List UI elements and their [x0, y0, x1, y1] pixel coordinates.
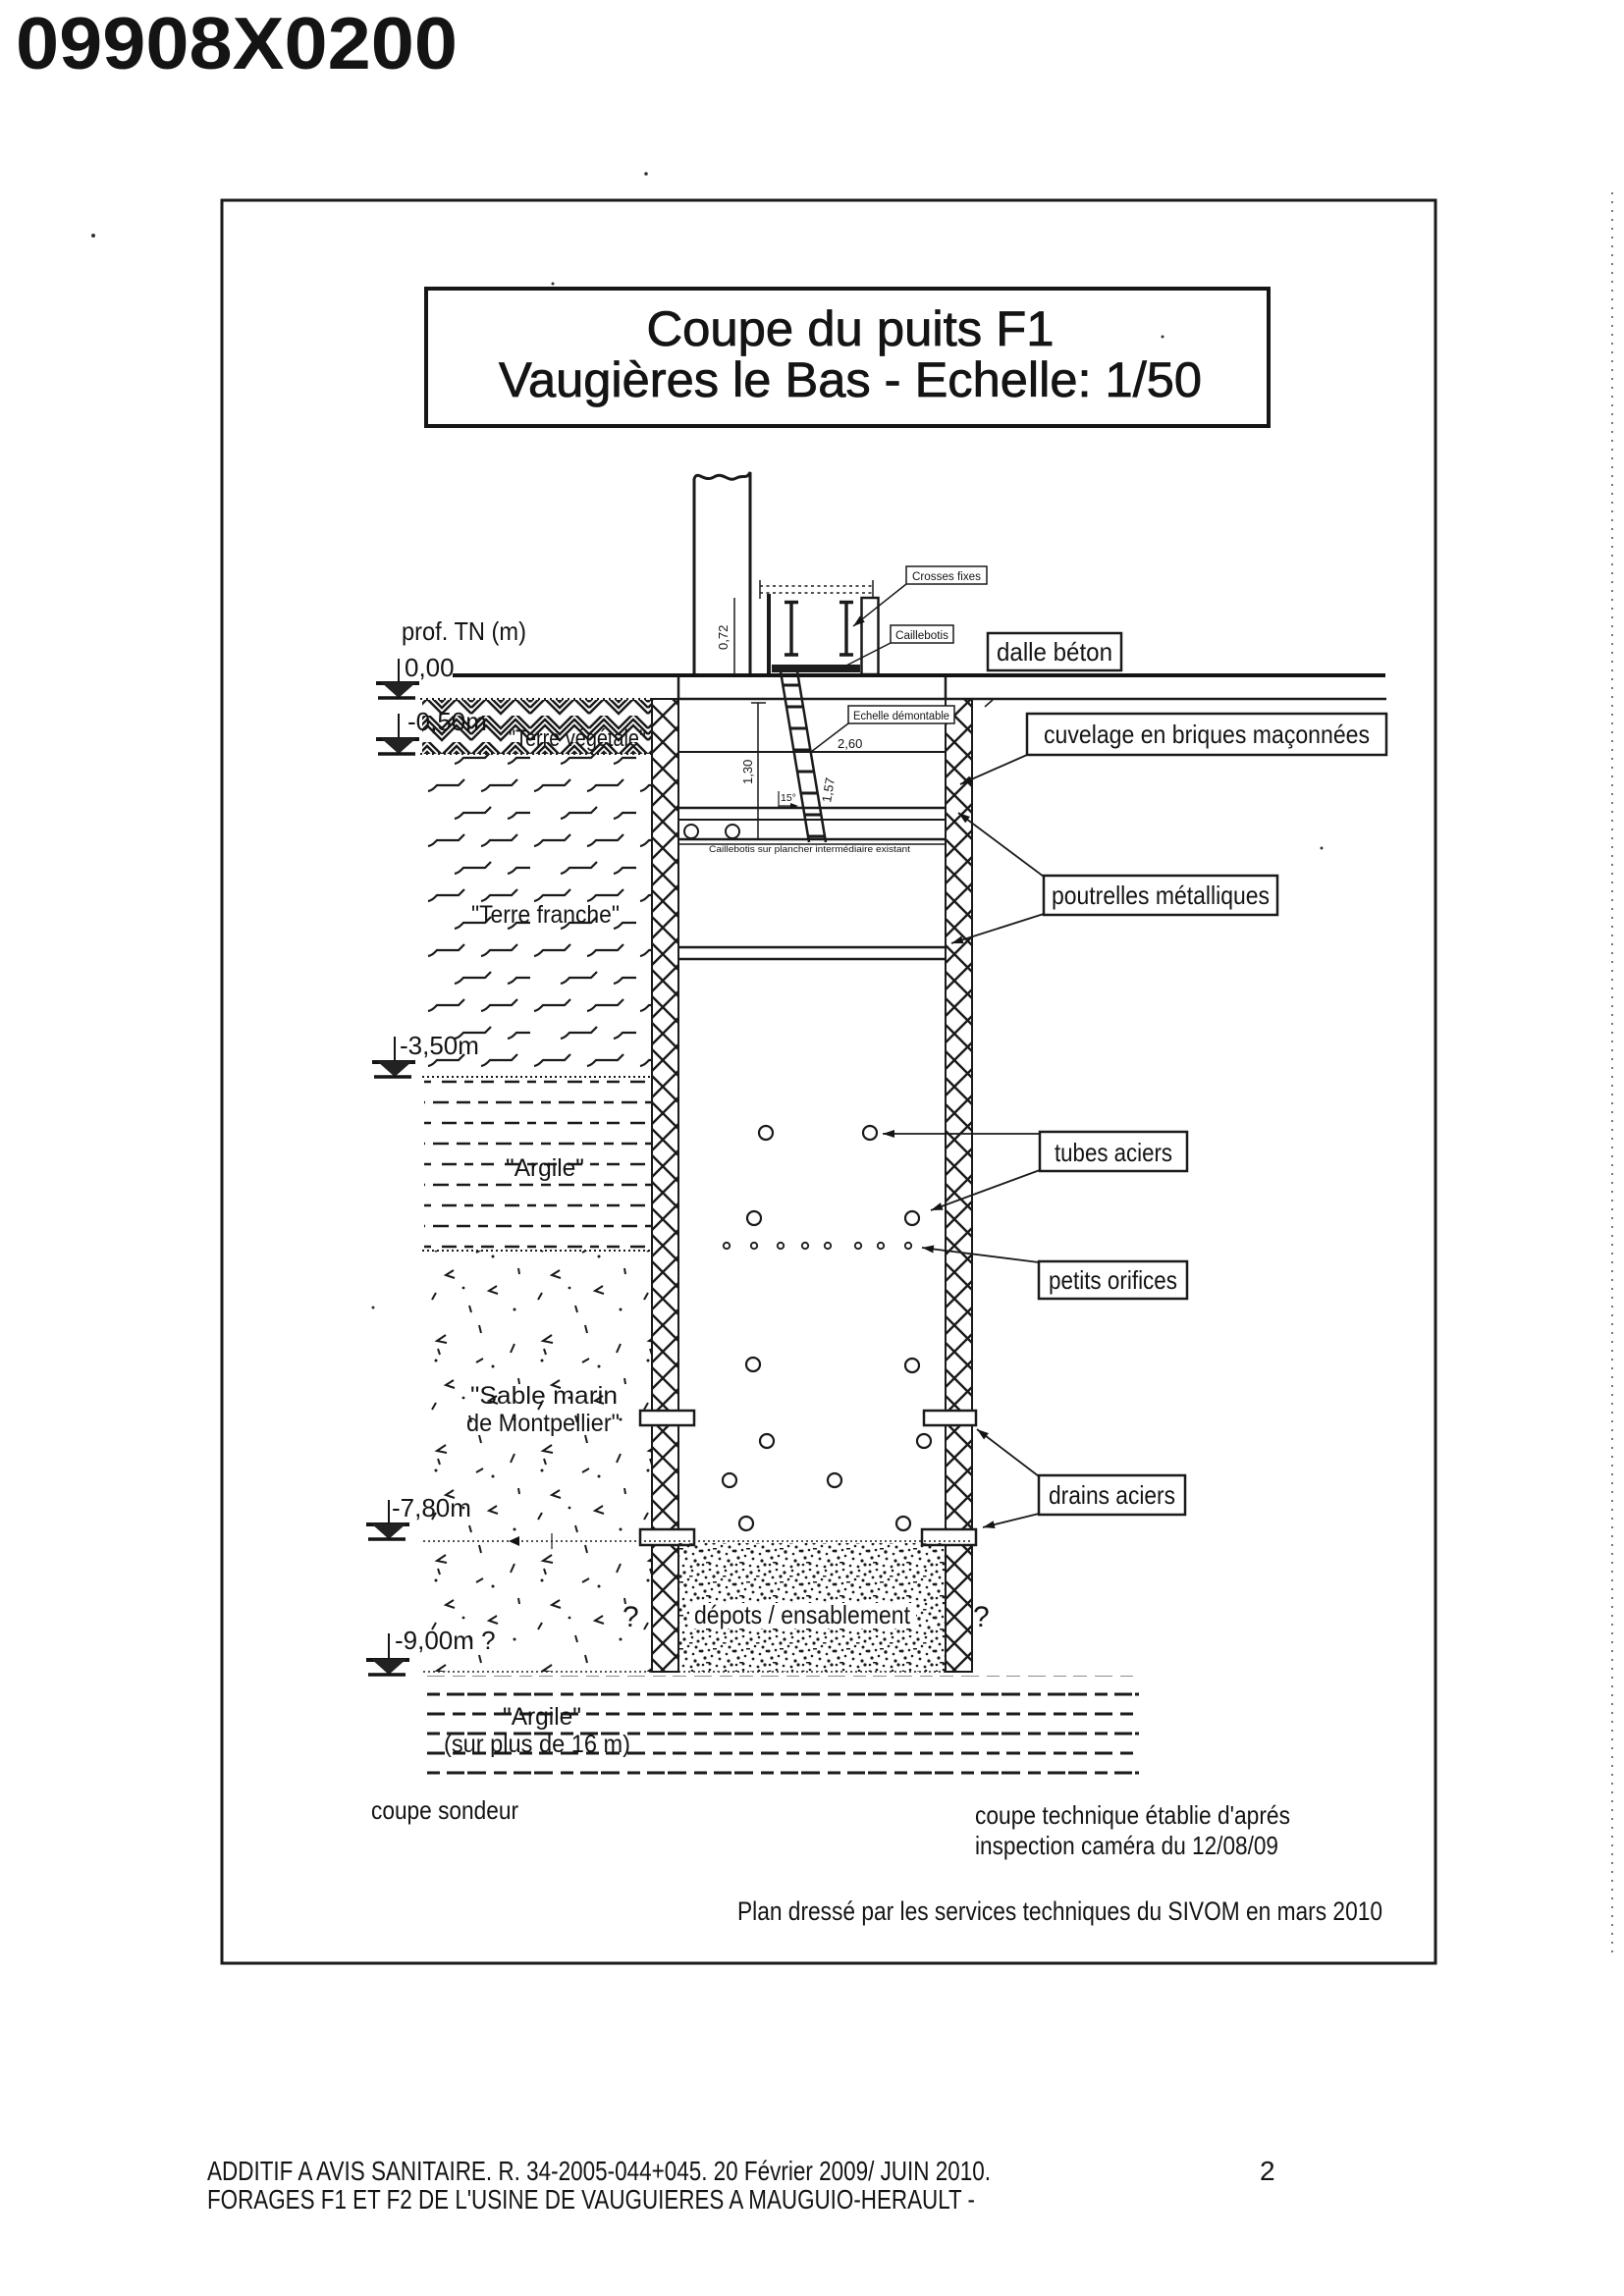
svg-text:Crosses fixes: Crosses fixes — [912, 571, 981, 583]
svg-text:Plan dressé par les services t: Plan dressé par les services techniques … — [737, 1896, 1382, 1926]
svg-text:Caillebotis: Caillebotis — [895, 630, 948, 642]
svg-text:Vaugières le Bas - Echelle: 1/: Vaugières le Bas - Echelle: 1/50 — [499, 352, 1202, 407]
svg-text:09908X0200: 09908X0200 — [16, 2, 458, 84]
svg-text:?: ? — [973, 1601, 990, 1633]
svg-text:0,00: 0,00 — [405, 653, 455, 682]
svg-text:2,60: 2,60 — [838, 736, 862, 751]
svg-text:-7,80m: -7,80m — [392, 1493, 471, 1522]
svg-text:inspection caméra du 12/08/09: inspection caméra du 12/08/09 — [975, 1831, 1278, 1860]
svg-text:-9,00m ?: -9,00m ? — [395, 1626, 496, 1655]
svg-text:petits orifices: petits orifices — [1049, 1265, 1177, 1295]
svg-text:tubes aciers: tubes aciers — [1055, 1138, 1172, 1167]
svg-text:coupe technique établie d'apré: coupe technique établie d'aprés — [975, 1800, 1290, 1830]
svg-text:"Terre végétale": "Terre végétale" — [509, 725, 646, 752]
svg-text:Caillebotis sur plancher inter: Caillebotis sur plancher intermédiaire e… — [709, 844, 910, 855]
svg-text:-3,50m: -3,50m — [400, 1031, 479, 1060]
svg-text:"Terre franche": "Terre franche" — [471, 901, 620, 929]
svg-text:dalle béton: dalle béton — [997, 637, 1112, 667]
svg-text:prof. TN (m): prof. TN (m) — [402, 616, 526, 646]
svg-text:de Montpellier": de Montpellier" — [466, 1410, 620, 1437]
svg-text:coupe sondeur: coupe sondeur — [371, 1795, 518, 1825]
svg-text:dépots / ensablement: dépots / ensablement — [694, 1600, 911, 1629]
svg-text:cuvelage en briques maçonnées: cuvelage en briques maçonnées — [1044, 720, 1370, 749]
svg-text:"Argile": "Argile" — [503, 1703, 581, 1731]
svg-text:ADDITIF A AVIS SANITAIRE. R. 3: ADDITIF A AVIS SANITAIRE. R. 34-2005-044… — [207, 2156, 991, 2186]
svg-text:Coupe du puits F1: Coupe du puits F1 — [647, 301, 1055, 356]
svg-text:-0,50m: -0,50m — [407, 707, 487, 736]
svg-text:FORAGES F1 ET F2 DE L'USINE DE: FORAGES F1 ET F2 DE L'USINE DE VAUGUIERE… — [207, 2184, 975, 2215]
svg-text:"Argile": "Argile" — [506, 1154, 584, 1182]
svg-text:drains aciers: drains aciers — [1049, 1480, 1175, 1510]
svg-text:1,57: 1,57 — [819, 776, 838, 803]
svg-text:"Sable marin: "Sable marin — [470, 1382, 618, 1410]
svg-text:(sur plus de 16 m): (sur plus de 16 m) — [444, 1731, 630, 1758]
svg-text:Echelle démontable: Echelle démontable — [853, 711, 949, 722]
svg-text:1,30: 1,30 — [740, 760, 755, 784]
svg-text:15°: 15° — [781, 792, 796, 804]
svg-text:?: ? — [623, 1601, 639, 1633]
svg-text:poutrelles métalliques: poutrelles métalliques — [1052, 881, 1270, 910]
svg-text:0,72: 0,72 — [716, 625, 731, 650]
svg-text:2: 2 — [1260, 2156, 1275, 2186]
